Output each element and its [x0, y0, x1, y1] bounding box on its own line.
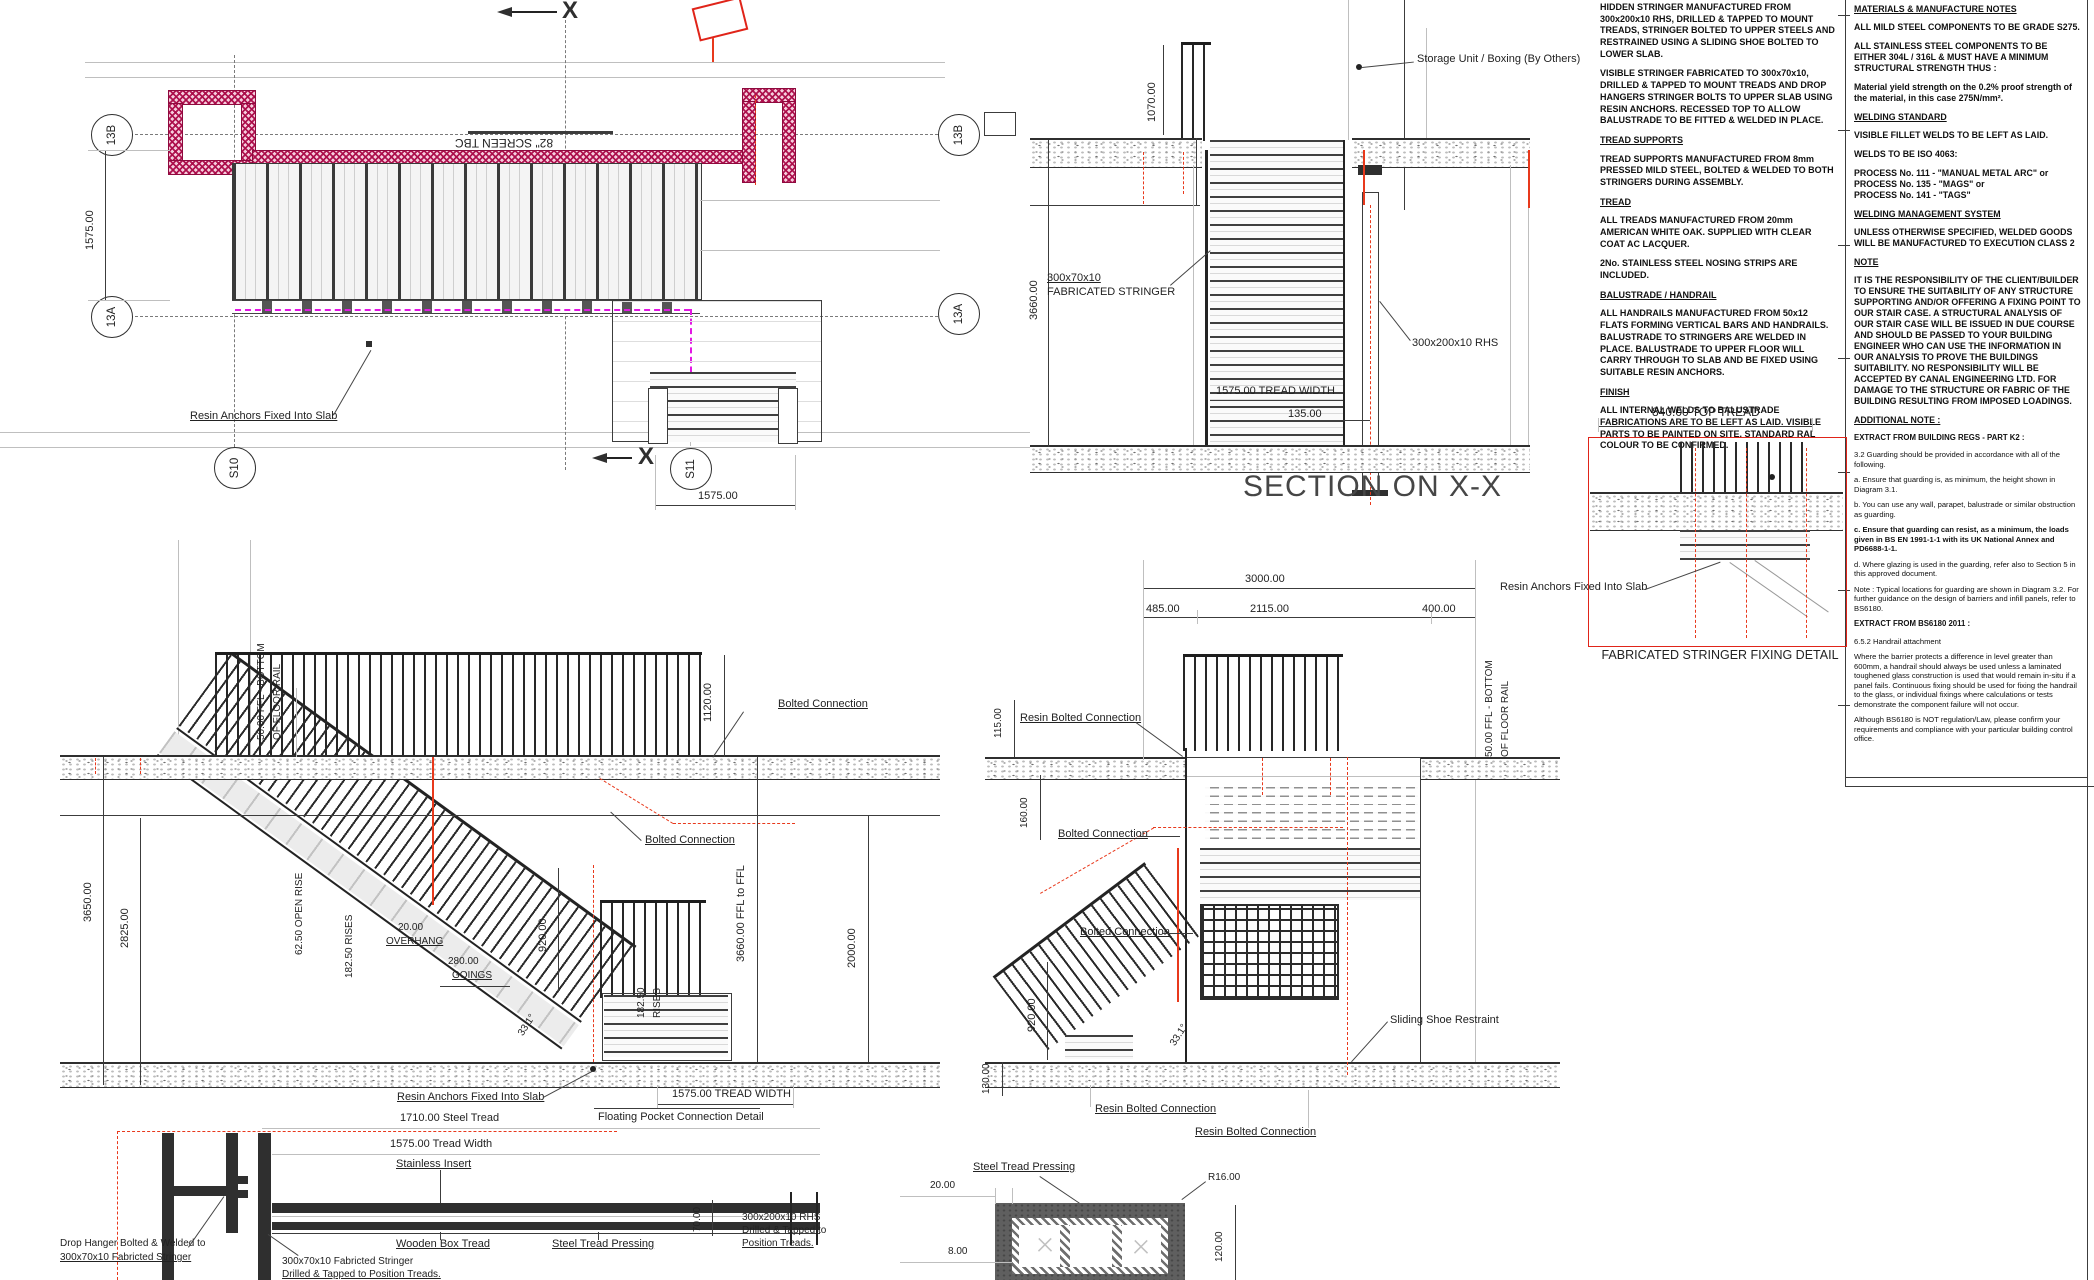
resin-anchors-label: Resin Anchors Fixed Into Slab — [397, 1091, 544, 1103]
dim-line — [868, 815, 869, 1062]
storage-boxing-mesh — [1200, 904, 1339, 1000]
ffl-note: 50.00 FFL - BOTTOM — [1484, 660, 1495, 757]
note-heading: TREAD — [1600, 197, 1837, 209]
red-leader — [1153, 827, 1343, 828]
stringer-detail-label: Drilled & Tapped to Position Treads. — [282, 1269, 441, 1280]
tread-top-plate — [272, 1203, 820, 1213]
plan-wall — [782, 101, 796, 183]
dim-3660: 3660.00 — [1028, 280, 1040, 320]
building-line — [0, 432, 1030, 433]
grid-bubble-label: S10 — [229, 458, 241, 478]
dim-ext — [995, 1188, 996, 1204]
leader-line — [1090, 1085, 1091, 1107]
dim-1575-vertical: 1575.00 — [84, 210, 96, 250]
dim-line — [262, 1128, 820, 1129]
note-small: Where the barrier protects a difference … — [1854, 652, 2082, 709]
upper-slab — [1420, 757, 1560, 780]
note-small: 3.2 Guarding should be provided in accor… — [1854, 450, 2082, 469]
dim-ext — [88, 300, 170, 301]
dim-overhang: 20.00 — [398, 922, 423, 933]
red-leader — [673, 823, 795, 824]
leader-line — [712, 711, 744, 757]
bolted-connection-label: Bolted Connection — [778, 698, 868, 710]
note-paragraph: WELDS TO BE ISO 4063: — [1854, 149, 2082, 160]
dim-overhang: OVERHANG — [386, 936, 443, 947]
dim-130: 130.00 — [981, 1063, 992, 1094]
dim-ext — [795, 455, 796, 510]
plan-step-plate — [778, 388, 798, 444]
sheet-border — [1845, 786, 2094, 787]
dim-160: 160.00 — [1019, 797, 1030, 828]
note-small: 6.5.2 Handrail attachment — [1854, 637, 2082, 646]
sheet-border — [1845, 777, 2087, 778]
red-centerline — [593, 865, 594, 1062]
lower-landing-steps — [604, 995, 728, 1057]
dim-line — [1343, 420, 1370, 421]
grid-bubble-s11: S11 — [670, 448, 712, 490]
rhs-connection — [1358, 165, 1382, 175]
red-centerline — [1143, 152, 1144, 204]
leader-line — [1039, 1176, 1080, 1204]
wooden-box-label: Wooden Box Tread — [396, 1238, 490, 1250]
note-paragraph: ALL TREADS MANUFACTURED FROM 20mm AMERIC… — [1600, 215, 1837, 250]
dim-ext — [655, 455, 656, 510]
red-centerline — [432, 757, 434, 905]
stringer-label: FABRICATED STRINGER — [1047, 286, 1175, 298]
stainless-insert-label: Stainless Insert — [396, 1158, 471, 1170]
red-centerline — [1347, 757, 1348, 1075]
plan-floor-line — [700, 250, 940, 251]
leader-line — [440, 1232, 441, 1240]
grid-bubble-s10: S10 — [214, 447, 256, 489]
detail-treads — [1680, 530, 1810, 560]
section-stringer — [1205, 150, 1208, 460]
dim-1575-horizontal: 1575.00 — [698, 490, 738, 502]
materials-notes: MATERIALS & MANUFACTURE NOTES ALL MILD S… — [1854, 4, 2082, 750]
tread-edge — [1343, 140, 1345, 445]
leader-line — [440, 1170, 441, 1203]
section-title: SECTION ON X-X — [1243, 470, 1502, 504]
dim-70: 70.00 — [692, 1207, 703, 1232]
leader-line — [188, 1196, 225, 1248]
note-small: Note : Typical locations for guarding ar… — [1854, 585, 2082, 613]
dim-ext — [1197, 610, 1198, 624]
sheet-border — [1845, 0, 1846, 786]
note-heading: ADDITIONAL NOTE : — [1854, 415, 2082, 426]
red-centerline — [1806, 448, 1807, 638]
section-upper-slab — [1352, 138, 1530, 168]
note-heading: MATERIALS & MANUFACTURE NOTES — [1854, 4, 2082, 15]
dim-goings: 280.00 — [448, 956, 479, 967]
leader-line — [1140, 836, 1180, 837]
tread-line — [272, 1216, 820, 1217]
note-heading: WELDING STANDARD — [1854, 112, 2082, 123]
red-leader — [599, 778, 673, 824]
dim-line — [757, 757, 758, 1062]
red-centerline — [1528, 150, 1530, 208]
legend-square — [984, 112, 1016, 136]
stringer-end-plate — [258, 1133, 271, 1280]
dim-ext — [1812, 418, 1813, 432]
dim-1120: 1120.00 — [702, 683, 714, 722]
ground-slab — [985, 1062, 1560, 1088]
red-centerline — [755, 95, 756, 185]
red-slab-mark — [1330, 758, 1331, 795]
tread-line — [272, 1233, 820, 1234]
dim-2000: 2000.00 — [846, 928, 858, 968]
storage-label: Storage Unit / Boxing (By Others) — [1417, 53, 1580, 65]
fabrication-notes: HIDDEN STRINGER MANUFACTURED FROM 300x20… — [1600, 2, 1837, 460]
resin-bolted-label: Resin Bolted Connection — [1195, 1126, 1316, 1138]
lower-flight-group — [993, 862, 1200, 1050]
dim-line — [1047, 962, 1048, 1060]
upper-slab — [60, 755, 940, 780]
hidden-tread-lines — [1205, 780, 1418, 846]
anchor-dot — [1769, 474, 1775, 480]
note-paragraph: TREAD SUPPORTS MANUFACTURED FROM 8mm PRE… — [1600, 154, 1837, 189]
dim-open-rise: 62.50 OPEN RISE — [294, 873, 305, 955]
note-heading: TREAD SUPPORTS — [1600, 135, 1837, 147]
dim-115: 115.00 — [993, 708, 1004, 738]
bolt — [238, 1176, 248, 1184]
note-paragraph: IT IS THE RESPONSIBILITY OF THE CLIENT/B… — [1854, 275, 2082, 407]
stringer-edge — [1185, 748, 1187, 1062]
screen-label: 82" SCREEN TBC — [455, 136, 553, 150]
dim-line — [1235, 1205, 1236, 1280]
rhs-detail-label: Drilled & Tapped to — [742, 1225, 826, 1236]
dim-line — [1040, 775, 1041, 840]
border-tick — [1838, 705, 1850, 706]
grid-bubble-label: 13A — [106, 307, 118, 327]
note-heading: WELDING MANAGEMENT SYSTEM — [1854, 209, 2082, 220]
dim-line — [900, 1262, 1012, 1263]
dim-ext — [296, 688, 297, 757]
wall-line — [1510, 165, 1511, 445]
dim-goings: GOINGS — [452, 970, 492, 981]
border-tick — [1838, 15, 1850, 16]
note-heading: FINISH — [1600, 387, 1837, 399]
lower-steps — [1065, 1035, 1133, 1059]
note-small: b. You can use any wall, parapet, balust… — [1854, 500, 2082, 519]
dim-line — [1143, 617, 1475, 618]
slab-line — [1185, 776, 1420, 777]
dim-line — [657, 1104, 793, 1105]
red-slab-mark — [140, 758, 141, 774]
dim-line — [712, 1200, 713, 1236]
drop-hanger-label: 300x70x10 Fabricted Stringer — [60, 1252, 191, 1263]
stringer-detail-label: 300x70x10 Fabricted Stringer — [282, 1256, 413, 1267]
dim-8: 8.00 — [948, 1246, 967, 1257]
wall-line — [1348, 0, 1349, 140]
section-arrow-icon — [497, 7, 512, 17]
dim-ext — [657, 1085, 658, 1108]
grid-bubble-label: 13A — [953, 304, 965, 324]
anchor-dot — [366, 341, 372, 347]
plan-lower-steps — [650, 372, 796, 442]
leader-line — [1351, 1021, 1388, 1062]
red-centerline — [1363, 150, 1365, 205]
grid-bubble-label: 13B — [953, 125, 965, 145]
section-arrow-line — [512, 11, 557, 13]
pressing-detail-label: Steel Tread Pressing — [973, 1161, 1075, 1173]
plan-wall — [742, 101, 756, 183]
plan-wall — [168, 103, 183, 167]
dim-920: 920.00 — [537, 918, 549, 952]
note-small: Although BS6180 is NOT regulation/Law, p… — [1854, 715, 2082, 743]
dim-line — [1163, 45, 1164, 135]
label-line — [594, 1108, 760, 1109]
resin-bolted-label: Resin Bolted Connection — [1020, 712, 1141, 724]
grid-bubble-13b: 13B — [938, 114, 980, 156]
red-centerline — [1183, 152, 1184, 194]
tread-bottom-plate — [272, 1222, 820, 1230]
dim-line — [900, 1196, 995, 1197]
dim-line — [140, 818, 141, 1085]
note-small: d. Where glazing is used in the guarding… — [1854, 560, 2082, 579]
drop-hanger-arm — [174, 1186, 228, 1196]
section-arrow-icon — [592, 453, 607, 463]
dim-400: 400.00 — [1422, 603, 1456, 615]
dim-ext — [88, 150, 170, 151]
tread-stack — [1200, 848, 1420, 900]
dim-r16: R16.00 — [1208, 1172, 1240, 1183]
red-slab-mark — [95, 758, 96, 774]
grid-bubble-label: S11 — [685, 459, 697, 479]
section-balustrade — [1181, 42, 1211, 141]
leader-line — [598, 1232, 599, 1240]
dim-920: 920.00 — [1026, 998, 1038, 1032]
dim-2825: 2825.00 — [119, 908, 131, 948]
leader-line — [1163, 933, 1193, 934]
section-upper-slab — [1030, 138, 1202, 168]
dim-1070: 1070.00 — [1146, 82, 1158, 122]
note-small: a. Ensure that guarding is, as minimum, … — [1854, 475, 2082, 494]
fixing-detail-title: FABRICATED STRINGER FIXING DETAIL — [1600, 648, 1840, 662]
building-line — [0, 447, 1030, 448]
note-subheading: EXTRACT FROM BUILDING REGS - PART K2 : — [1854, 433, 2082, 443]
dim-line — [655, 505, 795, 506]
drop-hanger-label: Drop Hanger Bolted & Welded to — [60, 1238, 205, 1249]
resin-bolted-label: Resin Bolted Connection — [1095, 1103, 1216, 1115]
ffl-note: OF FLOOR RAIL — [1500, 681, 1511, 757]
dim-line — [1143, 588, 1475, 589]
note-paragraph: PROCESS No. 135 - "MAGS" or — [1854, 179, 2082, 190]
dim-line — [105, 150, 106, 300]
grid-bubble-label: 13B — [106, 125, 118, 145]
mid-floor-line — [60, 815, 940, 816]
dim-line — [1598, 426, 1812, 427]
section-marker-x-bottom: X — [638, 443, 654, 471]
anchor-dot — [590, 1066, 596, 1072]
section-arrow-line — [607, 457, 632, 459]
upper-balustrade — [1183, 654, 1343, 751]
slab-soffit — [1030, 205, 1200, 206]
section-marker-x-top: X — [562, 0, 578, 25]
rhs-detail-label: 300x200x10 RHS — [742, 1212, 820, 1223]
boxing-line — [1404, 0, 1405, 210]
revision-flag — [692, 0, 749, 42]
bolted-connection-label: Bolted Connection — [1080, 926, 1170, 938]
plan-step-plate — [648, 388, 668, 444]
ffl-note: OF FLOOR RAIL — [272, 664, 283, 740]
rhs-detail-label: Position Treads. — [742, 1238, 814, 1249]
dim-ext — [1598, 418, 1599, 432]
dim-ffl: 3660.00 FFL to FFL — [735, 865, 747, 962]
dim-rises: 182.50 RISES — [344, 915, 355, 978]
dim-ext — [1012, 1188, 1013, 1204]
border-tick — [1838, 130, 1850, 131]
detail-resin-label: Resin Anchors Fixed Into Slab — [1500, 581, 1647, 593]
note-paragraph: Material yield strength on the 0.2% proo… — [1854, 82, 2082, 104]
dim-line — [724, 655, 725, 757]
note-paragraph: ALL HANDRAILS MANUFACTURED FROM 50x12 FL… — [1600, 308, 1837, 378]
dim-135: 135.00 — [1288, 408, 1322, 420]
leader-line — [1362, 62, 1414, 69]
note-subheading: EXTRACT FROM BS6180 2011 : — [1854, 619, 2082, 629]
red-slab-mark — [1262, 758, 1263, 795]
note-paragraph: UNLESS OTHERWISE SPECIFIED, WELDED GOODS… — [1854, 227, 2082, 249]
border-tick — [1838, 245, 1850, 246]
note-paragraph: PROCESS No. 111 - "MANUAL METAL ARC" or — [1854, 168, 2082, 179]
leader-line — [1308, 1090, 1309, 1128]
dim-20: 20.00 — [930, 1180, 955, 1191]
note-paragraph: PROCESS No. 141 - "TAGS" — [1854, 190, 2082, 201]
building-line — [85, 77, 945, 78]
stringer-label: 300x70x10 — [1047, 272, 1101, 284]
upper-slab — [985, 757, 1185, 780]
dim-line — [558, 868, 559, 992]
bolted-connection-label: Bolted Connection — [1058, 828, 1148, 840]
dim-3650: 3650.00 — [82, 882, 94, 922]
dim-line — [1014, 700, 1015, 757]
screen-line — [468, 131, 613, 134]
dim-line — [272, 1154, 820, 1155]
ground-slab — [60, 1062, 940, 1088]
pressing-label: Steel Tread Pressing — [552, 1238, 654, 1250]
upper-balustrade — [215, 652, 702, 758]
grid-bubble-13a: 13A — [91, 296, 133, 338]
wall-line — [1475, 560, 1476, 1062]
leader-line — [1181, 1181, 1206, 1200]
dim-line — [103, 757, 104, 1085]
ffl-note: 50.00 FFL - BOTTOM — [256, 643, 267, 740]
sliding-shoe-label: Sliding Shoe Restraint — [1390, 1014, 1499, 1026]
note-heading: BALUSTRADE / HANDRAIL — [1600, 290, 1837, 302]
dim-ext — [793, 1085, 794, 1108]
red-detail-border — [117, 1131, 617, 1132]
dim-840-top-tread: 840.00 TOP TREAD — [1652, 405, 1760, 419]
dim-rises2: RISES — [652, 988, 663, 1018]
grid-bubble-13a: 13A — [938, 293, 980, 335]
dim-tread-width: 1575.00 TREAD WIDTH — [672, 1088, 791, 1100]
floating-pocket-label: Floating Pocket Connection Detail — [598, 1111, 764, 1123]
bolted-connection-label: Bolted Connection — [645, 834, 735, 846]
note-paragraph: VISIBLE FILLET WELDS TO BE LEFT AS LAID. — [1854, 130, 2082, 141]
section-ground-slab — [1030, 445, 1530, 473]
note-paragraph: ALL STAINLESS STEEL COMPONENTS TO BE EIT… — [1854, 41, 2082, 74]
slab-line — [1185, 757, 1420, 758]
dim-rises2: 182.50 — [636, 987, 647, 1018]
plan-resin-anchors-label: Resin Anchors Fixed Into Slab — [190, 410, 337, 422]
dim-1710: 1710.00 Steel Tread — [400, 1112, 499, 1124]
dim-120: 120.00 — [1214, 1231, 1225, 1262]
leader-line — [333, 350, 372, 416]
dim-tread-width: 1575.00 TREAD WIDTH — [1216, 385, 1335, 397]
dim-1575: 1575.00 Tread Width — [390, 1138, 492, 1150]
lower-balustrade — [600, 900, 706, 998]
note-paragraph: HIDDEN STRINGER MANUFACTURED FROM 300x20… — [1600, 2, 1837, 60]
bolt — [238, 1190, 248, 1198]
pressing-divider — [1060, 1225, 1070, 1267]
pressing-divider — [1112, 1225, 1122, 1267]
dim-2115: 2115.00 — [1250, 603, 1289, 615]
rhs-label: 300x200x10 RHS — [1412, 337, 1498, 349]
dim-3000: 3000.00 — [1245, 573, 1285, 585]
note-paragraph: 2No. STAINLESS STEEL NOSING STRIPS ARE I… — [1600, 258, 1837, 281]
note-paragraph: VISIBLE STRINGER FABRICATED TO 300x70x10… — [1600, 68, 1837, 126]
note-small: c. Ensure that guarding can resist, as a… — [1854, 525, 2082, 553]
dim-line — [1002, 1062, 1003, 1096]
plan-wall — [252, 150, 752, 164]
note-heading: NOTE — [1854, 257, 2082, 268]
sheet-border — [2087, 0, 2088, 1280]
hanger-plate — [226, 1133, 238, 1233]
leader-line — [268, 1234, 299, 1256]
red-centerline — [1695, 448, 1696, 638]
dim-line — [1210, 400, 1343, 401]
dim-485: 485.00 — [1146, 603, 1180, 615]
plan-floor-line — [700, 200, 940, 201]
border-tick — [1838, 358, 1850, 359]
boxing-line — [1426, 28, 1427, 138]
note-paragraph: ALL MILD STEEL COMPONENTS TO BE GRADE S2… — [1854, 22, 2082, 33]
slab-edge — [1196, 138, 1197, 205]
leader-line — [1379, 301, 1411, 341]
drop-hanger — [1193, 165, 1194, 460]
building-line — [85, 62, 945, 63]
red-centerline — [1746, 448, 1747, 638]
drawing-sheet: 82" SCREEN TBC 13B 13A 13B 13A S10 S11 1… — [0, 0, 2094, 1280]
red-centerline — [1177, 848, 1179, 1002]
dim-line — [440, 986, 510, 987]
plan-tread-block — [232, 163, 702, 300]
